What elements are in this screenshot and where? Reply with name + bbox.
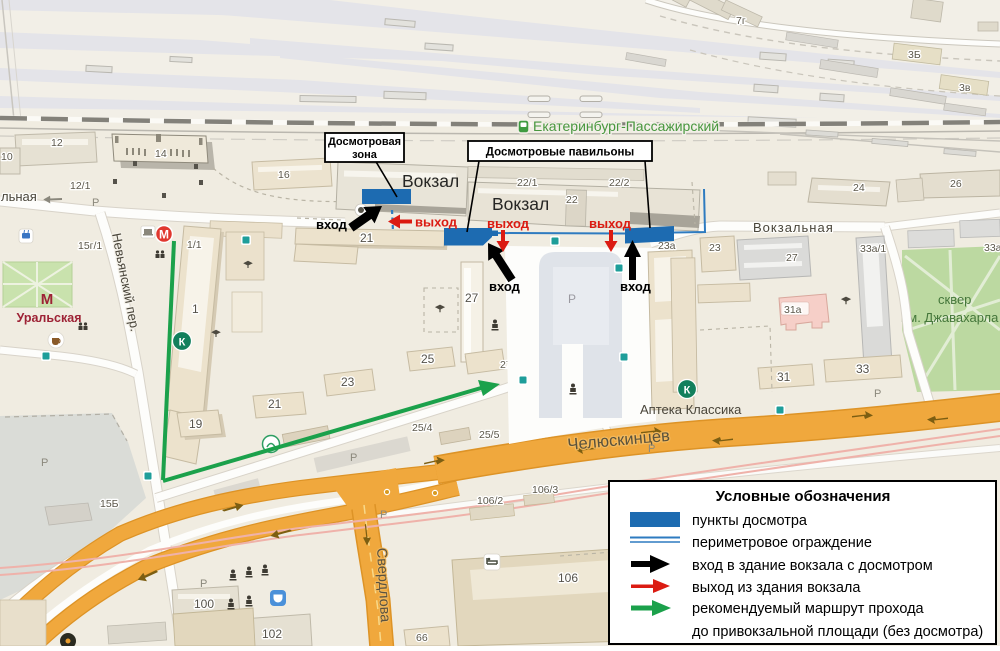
svg-text:Аптека Классика: Аптека Классика bbox=[640, 402, 742, 417]
svg-text:вход в здание вокзала с досмот: вход в здание вокзала с досмотром bbox=[692, 558, 933, 574]
svg-text:Досмотровые павильоны: Досмотровые павильоны bbox=[486, 147, 635, 159]
svg-text:Уральская: Уральская bbox=[17, 311, 82, 325]
svg-text:23а: 23а bbox=[658, 240, 676, 252]
svg-text:21: 21 bbox=[360, 231, 374, 245]
svg-text:24: 24 bbox=[853, 182, 865, 194]
svg-text:вход: вход bbox=[620, 279, 652, 294]
svg-text:7г: 7г bbox=[736, 15, 746, 27]
svg-text:1/1: 1/1 bbox=[187, 239, 202, 251]
svg-text:12: 12 bbox=[51, 137, 63, 149]
svg-text:106/3: 106/3 bbox=[532, 484, 558, 496]
svg-text:14: 14 bbox=[155, 148, 167, 160]
svg-text:выход: выход bbox=[589, 216, 632, 231]
svg-text:им. Джавахарла: им. Джавахарла bbox=[901, 310, 999, 325]
svg-text:33: 33 bbox=[856, 362, 870, 376]
svg-text:Екатеринбург-Пассажирский: Екатеринбург-Пассажирский bbox=[533, 118, 719, 134]
svg-text:33а/1: 33а/1 bbox=[860, 243, 886, 255]
svg-text:выход: выход bbox=[487, 216, 530, 231]
svg-text:33а: 33а bbox=[984, 242, 1000, 254]
svg-text:Вокзал: Вокзал bbox=[492, 194, 549, 214]
svg-text:до привокзальной площади (без: до привокзальной площади (без досмотра) bbox=[692, 624, 983, 640]
svg-text:23: 23 bbox=[341, 375, 355, 389]
svg-text:106/2: 106/2 bbox=[477, 495, 503, 507]
svg-text:К: К bbox=[179, 337, 186, 349]
svg-text:16: 16 bbox=[278, 169, 290, 181]
svg-text:вход: вход bbox=[316, 217, 348, 232]
svg-text:Р: Р bbox=[350, 452, 357, 464]
svg-text:Вокзальная: Вокзальная bbox=[753, 220, 834, 235]
svg-text:Условные обозначения: Условные обозначения bbox=[716, 488, 891, 505]
svg-text:Вокзал: Вокзал bbox=[402, 171, 459, 191]
svg-text:22/2: 22/2 bbox=[609, 177, 630, 189]
svg-text:3Б: 3Б bbox=[908, 49, 921, 61]
svg-text:22/1: 22/1 bbox=[517, 177, 538, 189]
svg-text:21: 21 bbox=[268, 397, 282, 411]
svg-text:1: 1 bbox=[192, 302, 199, 316]
svg-text:М: М bbox=[159, 228, 169, 242]
svg-text:100: 100 bbox=[194, 597, 214, 611]
svg-text:10: 10 bbox=[1, 151, 13, 163]
svg-text:М: М bbox=[41, 291, 54, 308]
svg-text:31: 31 bbox=[777, 370, 791, 384]
svg-text:Р: Р bbox=[92, 197, 99, 209]
svg-text:выход из здания вокзала: выход из здания вокзала bbox=[692, 580, 861, 596]
svg-text:12/1: 12/1 bbox=[70, 180, 91, 192]
svg-text:25/4: 25/4 bbox=[412, 422, 433, 434]
svg-text:вход: вход bbox=[489, 279, 521, 294]
svg-text:26: 26 bbox=[950, 178, 962, 190]
svg-text:зона: зона bbox=[352, 149, 378, 161]
svg-text:3в: 3в bbox=[959, 82, 971, 94]
svg-text:102: 102 bbox=[262, 627, 282, 641]
svg-text:23: 23 bbox=[709, 242, 721, 254]
svg-text:27: 27 bbox=[786, 252, 798, 264]
svg-text:Р: Р bbox=[874, 388, 881, 400]
svg-text:22: 22 bbox=[566, 194, 578, 206]
svg-text:106: 106 bbox=[558, 571, 578, 585]
svg-text:25: 25 bbox=[421, 352, 435, 366]
svg-text:66: 66 bbox=[416, 632, 428, 644]
svg-text:31а: 31а bbox=[784, 304, 802, 316]
svg-text:15Б: 15Б bbox=[100, 498, 119, 510]
svg-text:льная: льная bbox=[1, 189, 37, 204]
svg-text:27: 27 bbox=[465, 291, 479, 305]
svg-text:Р: Р bbox=[648, 443, 655, 455]
svg-text:25/5: 25/5 bbox=[479, 429, 500, 441]
svg-text:рекомендуемый маршрут прохода: рекомендуемый маршрут прохода bbox=[692, 601, 925, 617]
svg-text:19: 19 bbox=[189, 417, 203, 431]
svg-text:сквер: сквер bbox=[938, 292, 971, 307]
svg-text:Р: Р bbox=[568, 292, 576, 306]
svg-text:выход: выход bbox=[415, 215, 458, 230]
svg-text:К: К bbox=[684, 385, 691, 397]
svg-text:периметровое ограждение: периметровое ограждение bbox=[692, 535, 872, 551]
svg-text:Р: Р bbox=[380, 509, 387, 521]
svg-text:15г/1: 15г/1 bbox=[78, 240, 102, 252]
svg-text:Р: Р bbox=[200, 578, 207, 590]
svg-text:пункты досмотра: пункты досмотра bbox=[692, 513, 808, 529]
svg-text:Р: Р bbox=[41, 457, 48, 469]
svg-text:Досмотровая: Досмотровая bbox=[328, 136, 401, 148]
